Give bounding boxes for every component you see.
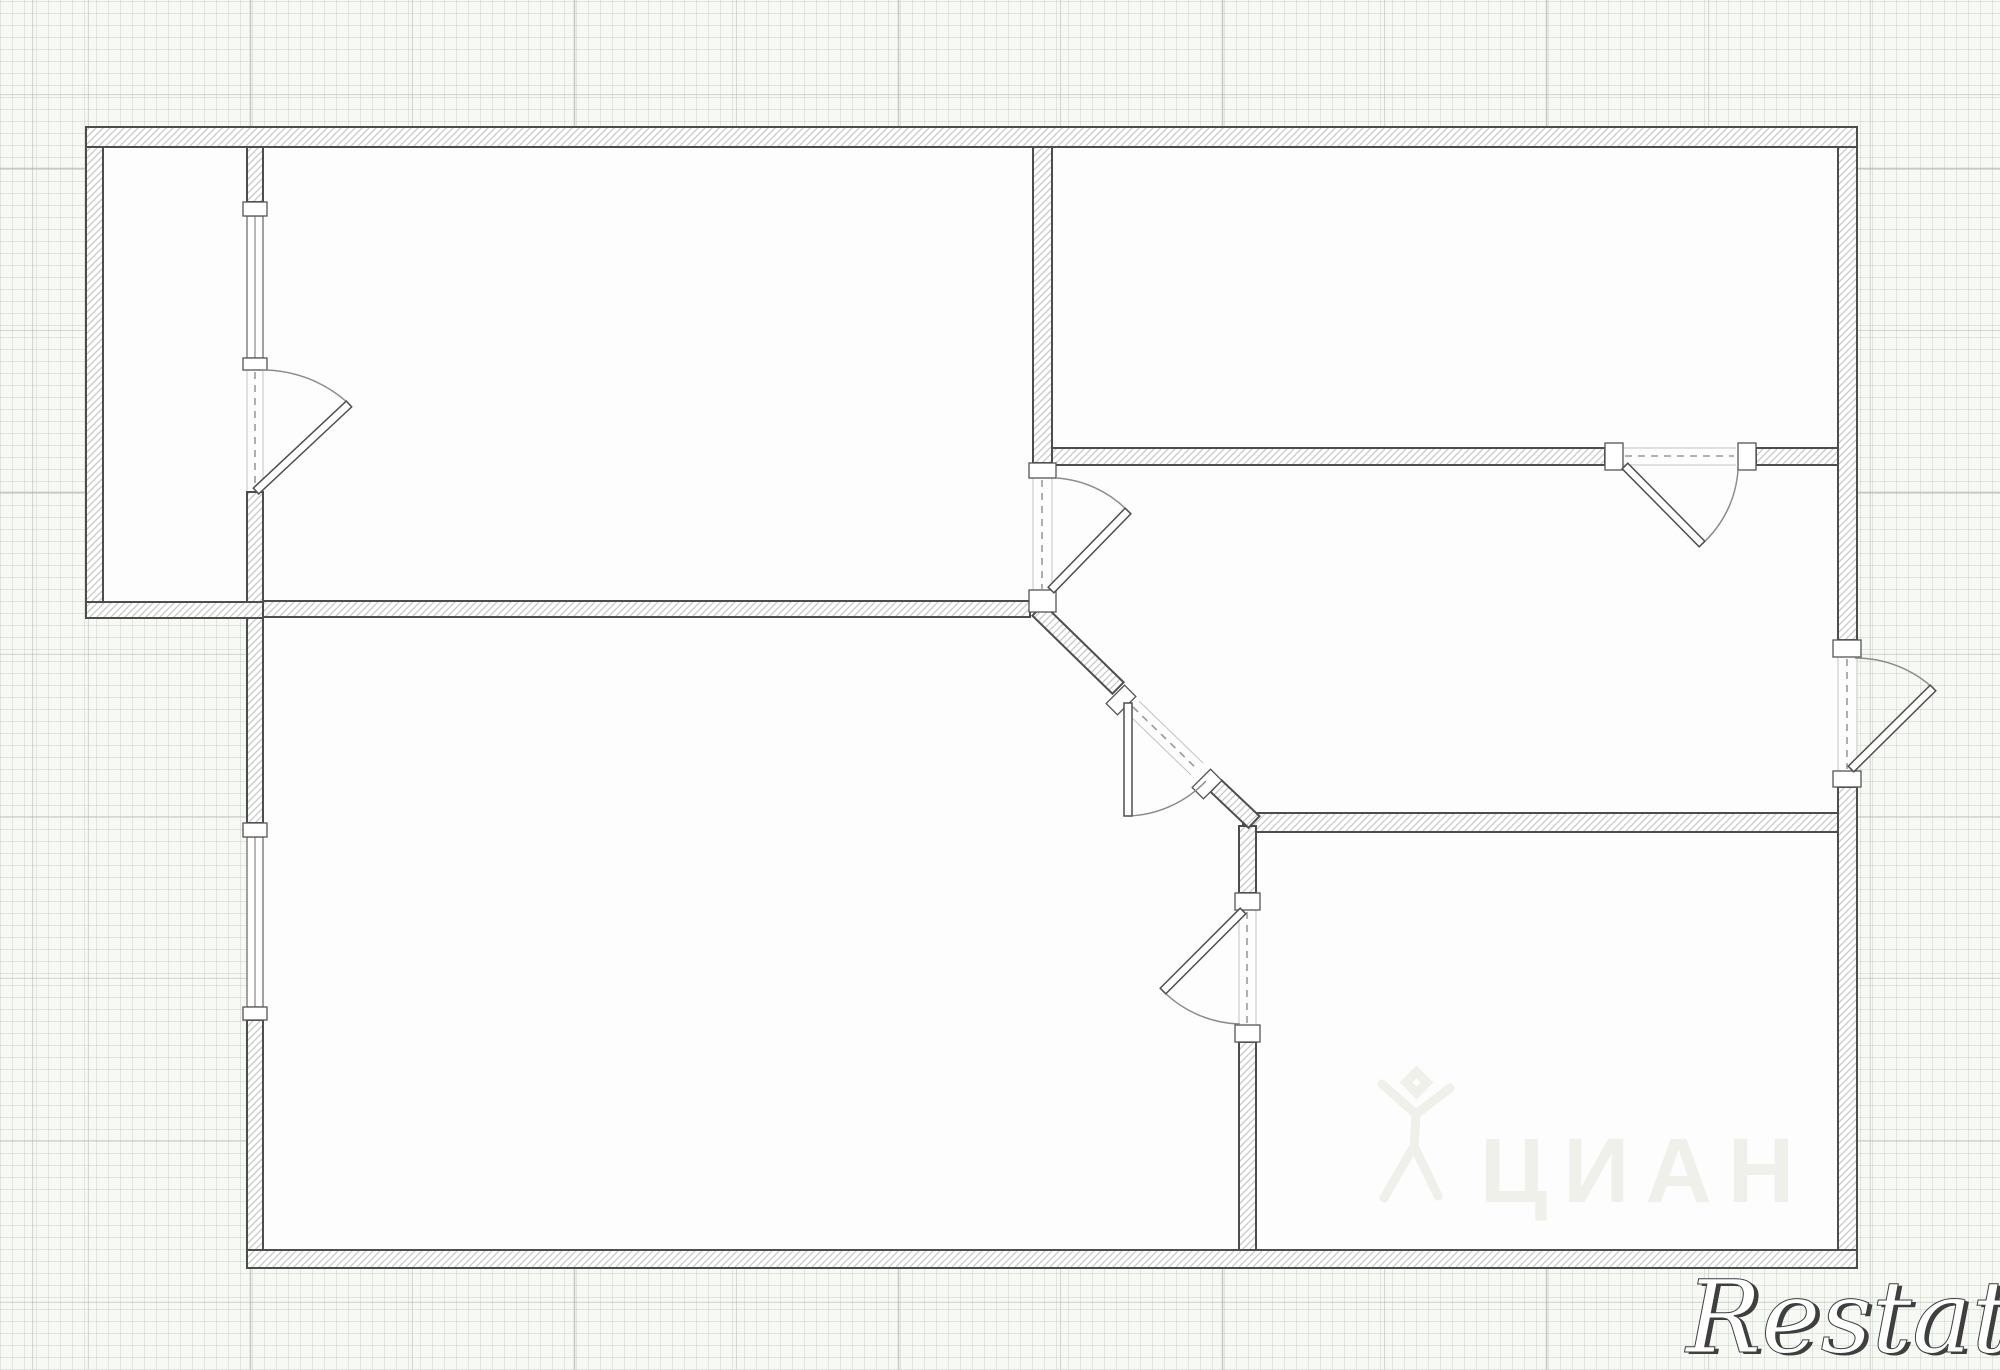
left-upper-exterior-wall (86, 147, 103, 602)
right-exterior-wall-upper (1838, 147, 1857, 640)
topright-bottom-wall-left (1052, 448, 1605, 465)
door-jamb (1833, 771, 1861, 787)
bottomcenter-wall-lower (1239, 1042, 1256, 1250)
floorplan-screenshot: ЦИАН Restate Restate (0, 0, 2000, 1370)
midright-bottom-wall (1243, 813, 1838, 832)
floorplan-drawing (0, 0, 2000, 1370)
left-lower-exterior-wall-a (247, 618, 263, 823)
bottomcenter-wall-upper (1239, 826, 1256, 893)
top-exterior-wall (86, 127, 1857, 147)
door-jamb (243, 358, 267, 370)
door-jamb (1235, 1025, 1260, 1042)
balcony-partition-stub (247, 147, 263, 202)
apartment-floor (86, 127, 1857, 1268)
bottom-exterior-wall (247, 1250, 1857, 1268)
livingroom-bottom-wall (263, 601, 1030, 617)
topright-bottom-wall-right (1756, 448, 1838, 465)
right-exterior-door-leaf (1848, 685, 1936, 772)
door-jamb (1235, 893, 1260, 910)
right-exterior-door-swing-arc (1855, 658, 1933, 688)
balcony-bottom-wall (86, 602, 263, 618)
balcony-partition-lower (247, 492, 263, 602)
door-jamb (1029, 463, 1056, 478)
door-jamb (243, 202, 267, 216)
left-lower-exterior-wall-b (247, 1020, 263, 1250)
center-vertical-wall (1033, 147, 1052, 463)
door-jamb (1738, 443, 1756, 470)
door-jamb (243, 1007, 267, 1020)
door-jamb (243, 823, 267, 837)
door-jamb (1833, 640, 1861, 657)
right-exterior-wall-lower (1838, 787, 1857, 1250)
door-jamb (1605, 443, 1623, 470)
door-jamb (1029, 590, 1056, 612)
diagonal-hall-door-leaf (1124, 703, 1132, 816)
